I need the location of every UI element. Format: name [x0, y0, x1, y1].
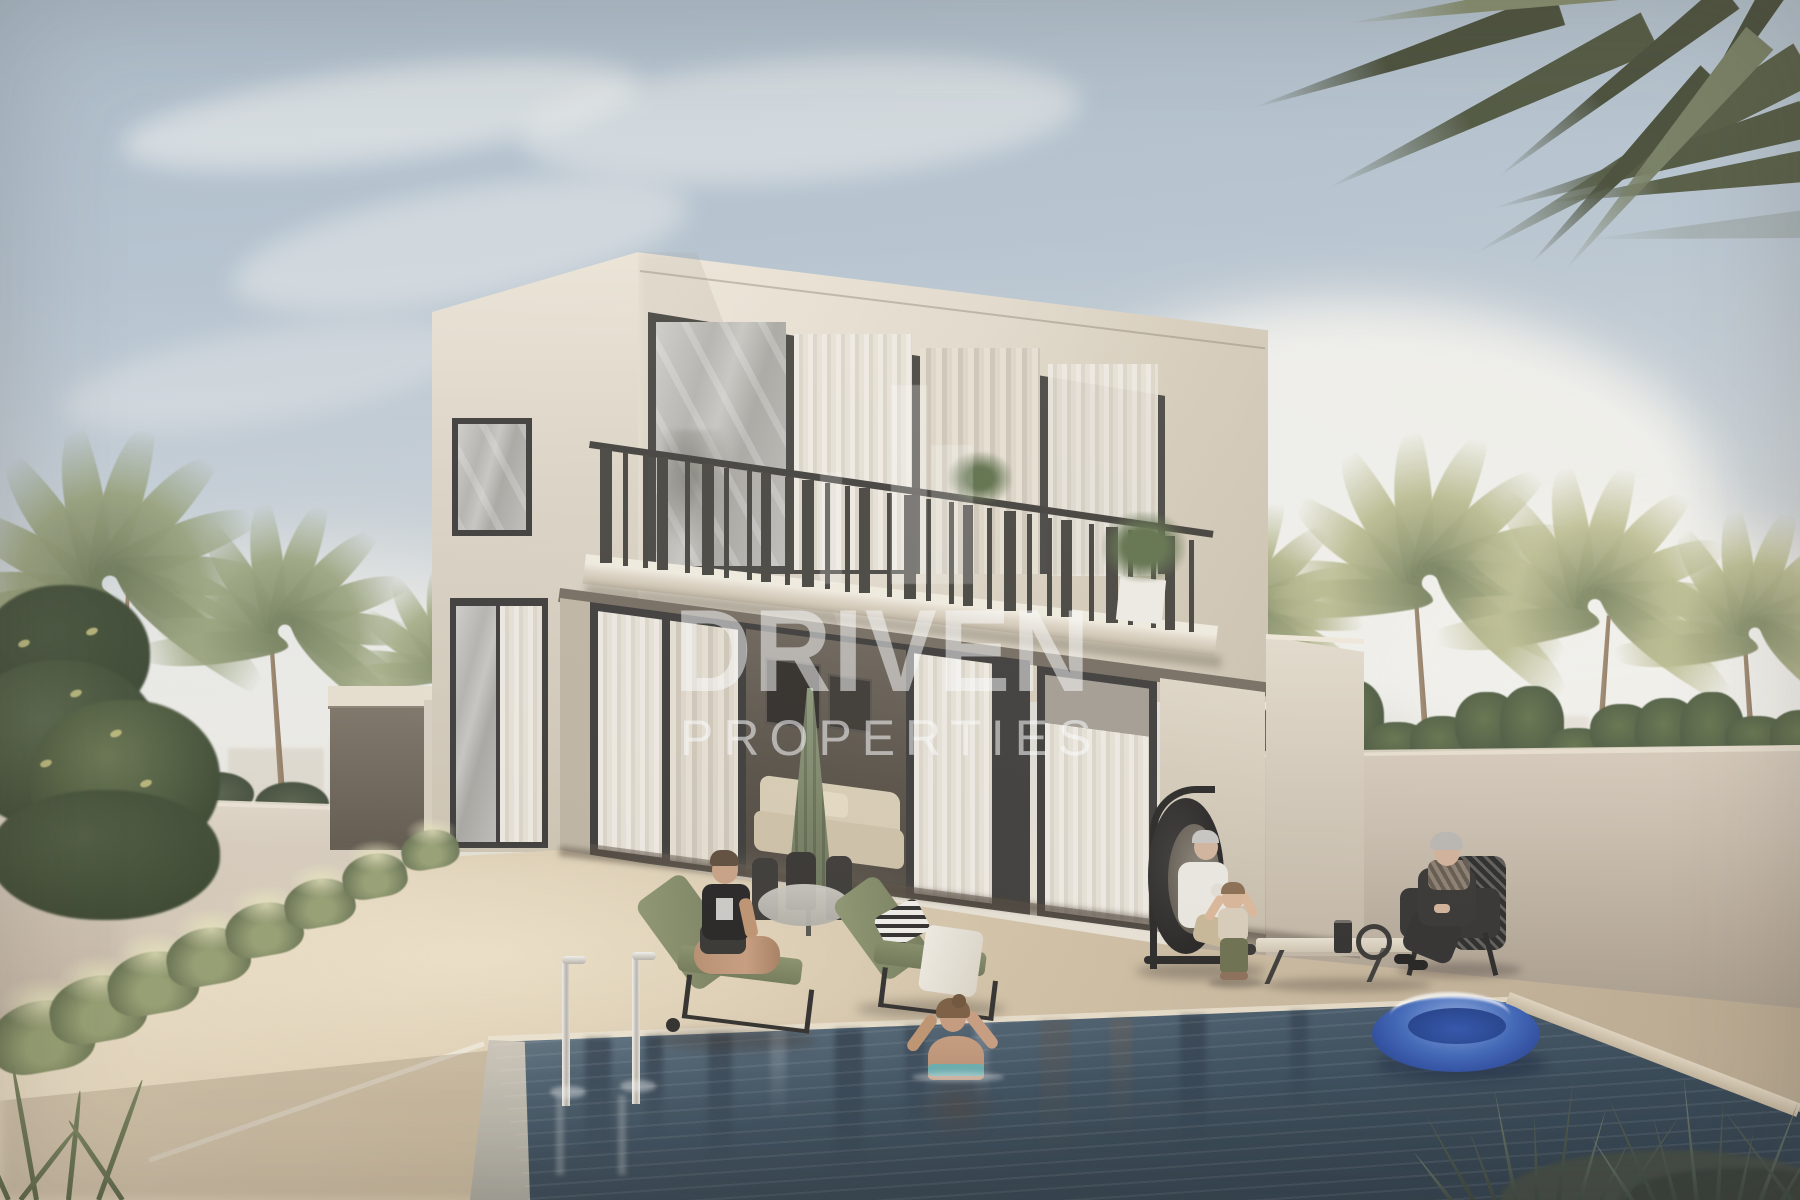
watermark-logo-bar-3 [931, 445, 973, 584]
overhanging-frond [1585, 210, 1800, 253]
villa-exterior-photo: DRIVEN PROPERTIES [0, 0, 1800, 1200]
overhanging-frond [1516, 65, 1724, 279]
watermark-logo-bar-2 [891, 385, 927, 584]
watermark-brand-title: DRIVEN [674, 592, 1092, 709]
watermark-logo-bar-1 [820, 472, 842, 584]
watermark-brand-subtitle: PROPERTIES [680, 713, 1101, 763]
